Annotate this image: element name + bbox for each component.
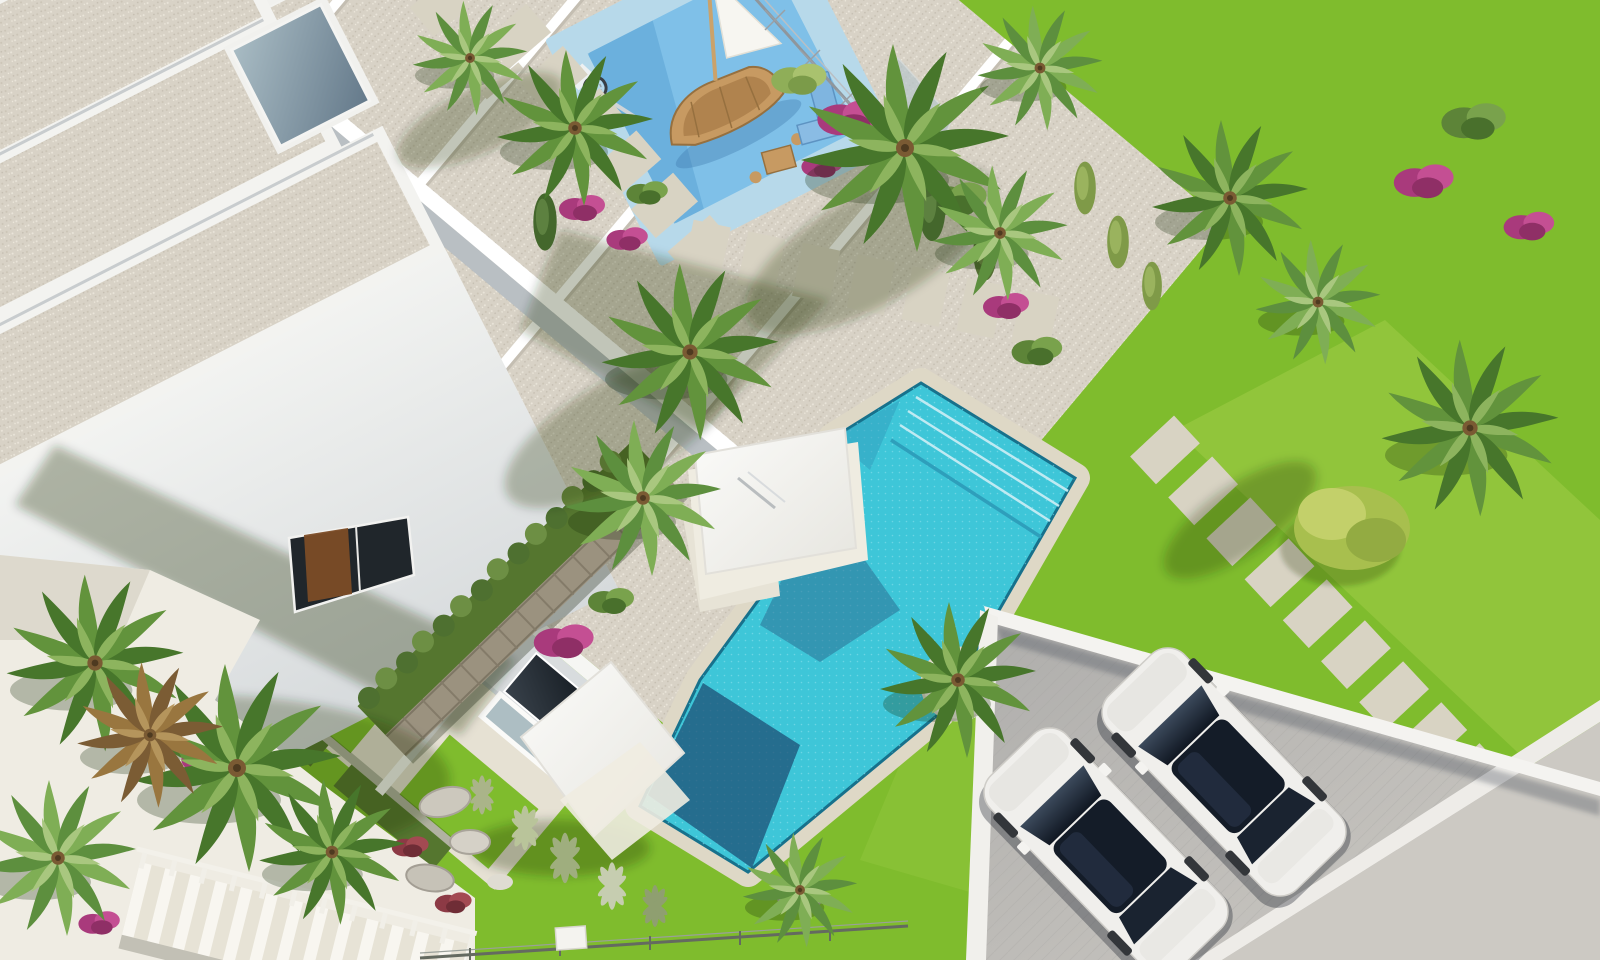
utility-box: [555, 926, 586, 950]
aerial-render-stage: aerial 3D render: [0, 0, 1600, 960]
aerial-render: aerial 3D render: [0, 0, 1600, 960]
